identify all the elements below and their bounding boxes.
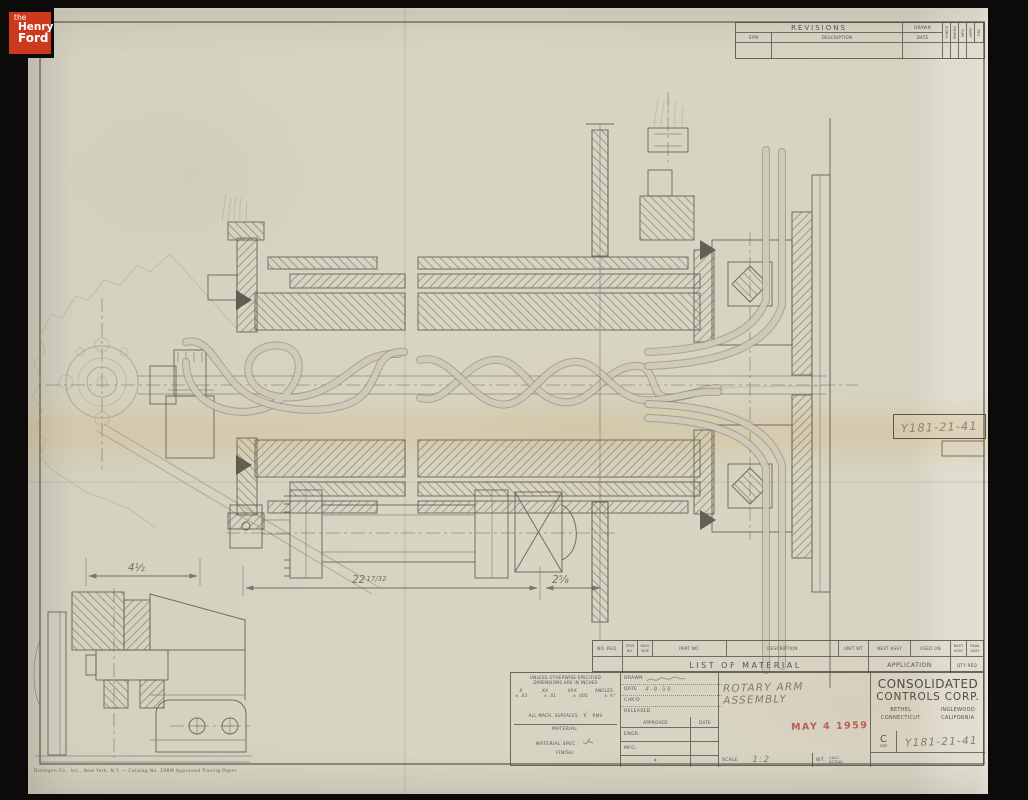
tol-v1: ± .03 <box>515 693 528 698</box>
revisions-mfg-col: MFG <box>959 23 967 43</box>
drawing-number-ref-box: Y181-21-41 <box>893 414 986 439</box>
title-block: UNLESS OTHERWISE SPECIFIED DIMENSIONS AR… <box>510 672 984 766</box>
lom-used-on: USED ON <box>911 641 951 657</box>
logo-ford: Ford <box>18 32 51 44</box>
scale-handwritten: 1:2 <box>752 755 770 765</box>
engr-date-cell <box>691 728 719 742</box>
company-name-1: CONSOLIDATED <box>871 677 985 691</box>
weight-row: WT. CALC. ACTUAL <box>813 753 871 767</box>
age-stain <box>60 80 320 270</box>
tol-v4: ± ½° <box>604 693 616 698</box>
drawing-number-handwritten: Y181-21-41 <box>901 418 978 435</box>
tol-v2: ± .01 <box>544 693 557 698</box>
revisions-empty-1 <box>943 43 951 59</box>
check-mark-symbol: √ <box>583 711 587 719</box>
lom-band-title: LIST OF MATERIAL <box>623 657 869 673</box>
mfg-date-cell <box>691 742 719 756</box>
approved-date-header: DATE <box>691 717 719 728</box>
company-name-2: CONTROLS CORP. <box>871 691 985 703</box>
revisions-engrg-col: ENGRG <box>951 23 959 43</box>
drawing-title-handwritten: ROTARY ARM ASSEMBLY <box>723 679 870 707</box>
engr-row: ENGR. <box>621 728 691 742</box>
lom-qty-req: QTY REQ <box>951 657 983 673</box>
wt-label: WT. <box>816 758 825 763</box>
lom-item-no: ITEM NO. <box>623 641 638 657</box>
date-stamp: MAY 4 1959 <box>791 720 869 733</box>
revisions-empty-4 <box>967 43 984 59</box>
tol-v3: ± .005 <box>573 693 588 698</box>
approval-block: DRAWN DATE 4-9-59 CHK'D. RELEASED APPROV… <box>621 673 719 767</box>
revisions-empty-2 <box>951 43 959 59</box>
revisions-description-header: DESCRIPTION <box>772 33 903 43</box>
size-label: SIZE <box>879 745 887 749</box>
list-of-material-table: NO. REQ. ITEM NO. DWG SIZE PART NO. DESC… <box>592 640 984 672</box>
age-stain <box>420 320 740 530</box>
wt-actual-label: ACTUAL <box>829 760 843 764</box>
lom-next-assy-small: NEXT ASSY <box>951 641 967 657</box>
revisions-sym-header: SYM <box>736 33 772 43</box>
scanned-drawing-page: { "colors": { "logo_red": "#cc3a1d", "st… <box>0 0 1028 800</box>
company-location-2: INGLEWOODCALIFORNIA <box>941 707 975 722</box>
henry-ford-logo: the Henry Ford <box>9 12 51 54</box>
material-label: MATERIAL: <box>514 727 617 732</box>
revisions-title: REVISIONS <box>736 23 903 33</box>
company-location-1: BETHELCONNECTICUT <box>881 707 921 722</box>
lom-final-assy-small: FINAL ASSY <box>967 641 983 657</box>
drawing-title-area: ROTARY ARM ASSEMBLY MAY 4 1959 SCALE 1:2… <box>719 673 871 767</box>
revisions-table: REVISIONS DRAWN SYM DESCRIPTION DATE CHE… <box>735 22 985 59</box>
material-spec-label: MATERIAL SPEC. <box>514 736 617 747</box>
revisions-drawn-header: DRAWN <box>903 23 943 33</box>
tol-line2: DIMENSIONS ARE IN INCHES <box>514 680 617 685</box>
revisions-empty-sym <box>736 43 772 59</box>
revisions-check-col: CHECK <box>943 23 951 43</box>
lom-unit-wt: UNIT WT <box>839 641 869 657</box>
revisions-rel-col: REL <box>975 23 984 43</box>
revisions-empty-desc <box>772 43 903 59</box>
lom-next-assy: NEXT ASSY <box>869 641 911 657</box>
drawing-number-titleblock: Y181-21-41 <box>904 734 977 749</box>
drawing-number-cell: Y181-21-41 <box>897 731 985 753</box>
paper-manufacturer-credit: Dietzgen Co., Inc., New York, N.Y. — Cat… <box>34 769 237 774</box>
lom-application: APPLICATION <box>869 657 951 673</box>
tol-rms: RMS <box>593 713 603 718</box>
drawn-signature <box>645 674 687 684</box>
company-empty-cell <box>871 753 985 767</box>
tolerance-block: UNLESS OTHERWISE SPECIFIED DIMENSIONS AR… <box>511 673 621 767</box>
company-block: CONSOLIDATED CONTROLS CORP. BETHELCONNEC… <box>871 673 985 767</box>
lom-no-req: NO. REQ. <box>593 641 623 657</box>
mfg-row: MFG. <box>621 742 691 756</box>
revisions-appd-col: APPD <box>967 23 975 43</box>
approved-header: APPROVED <box>621 717 691 728</box>
size-cell: C SIZE <box>871 731 897 753</box>
revisions-date-header: DATE <box>903 33 943 43</box>
scale-row: SCALE 1:2 <box>719 753 813 767</box>
lom-part-no: PART NO. <box>653 641 727 657</box>
approval-note-row: * <box>621 756 691 767</box>
revisions-empty-date <box>903 43 943 59</box>
lom-empty <box>593 657 623 673</box>
date-handwritten: 4-9-59 <box>645 686 672 693</box>
fold-line-horizontal <box>28 481 988 483</box>
released-row: RELEASED <box>621 706 722 717</box>
fold-line-vertical <box>404 8 406 794</box>
lom-description: DESCRIPTION <box>727 641 839 657</box>
approval-note-date <box>691 756 719 767</box>
finish-label: FINISH: <box>514 751 617 756</box>
revisions-empty-3 <box>959 43 967 59</box>
lom-dwg-size: DWG SIZE <box>638 641 653 657</box>
tol-surfaces: ALL MACH. SURFACES <box>529 713 578 718</box>
pencil-check-mark <box>581 736 595 745</box>
